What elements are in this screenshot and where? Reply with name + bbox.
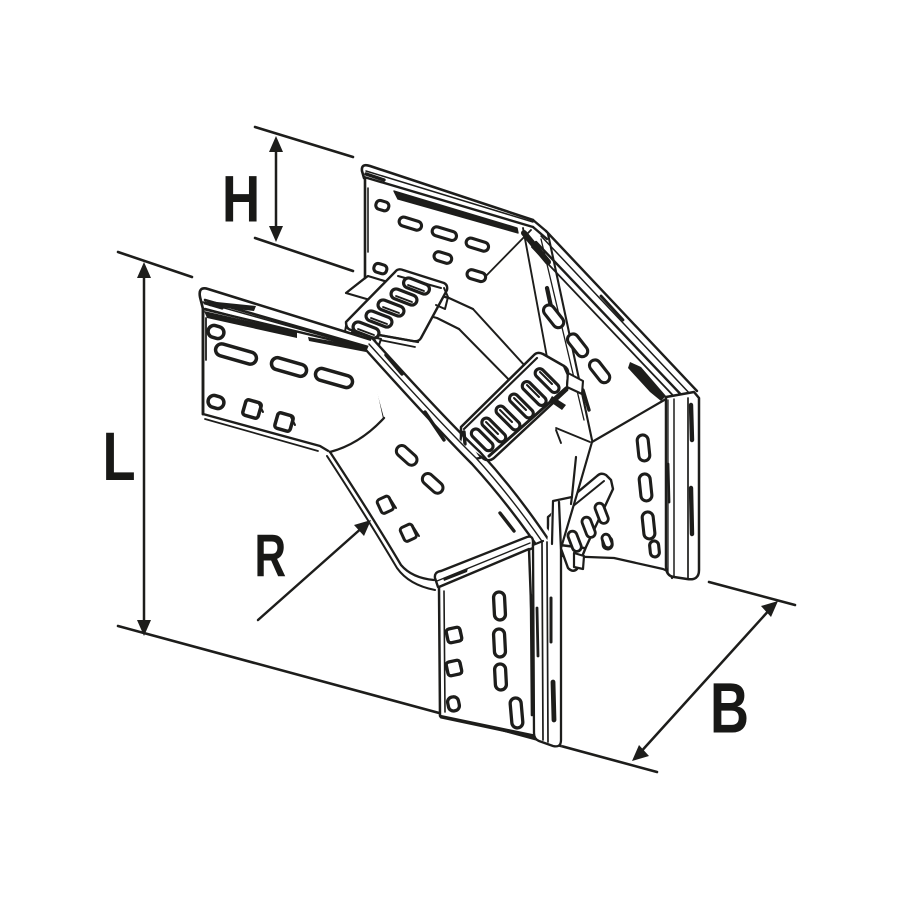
svg-text:B: B (710, 669, 749, 748)
svg-text:R: R (255, 523, 287, 590)
svg-text:L: L (103, 419, 136, 496)
svg-text:H: H (222, 162, 260, 236)
